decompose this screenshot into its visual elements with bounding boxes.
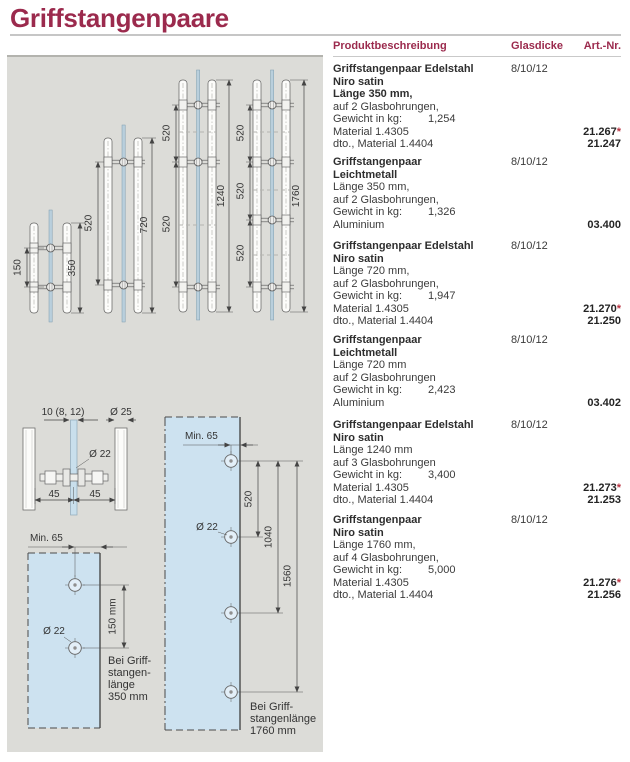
- product-detail-line: auf 3 Glasbohrungen: [333, 457, 511, 470]
- product-description: Griffstangenpaar Edelstahl Niro satin Lä…: [333, 240, 511, 328]
- article-number: 21.256: [573, 589, 621, 602]
- material-line: dto., Material 1.4404: [333, 589, 511, 602]
- caption-line: 1760 mm: [250, 725, 296, 737]
- article-number: 21.250: [573, 315, 621, 328]
- material-line: Material 1.4305: [333, 126, 511, 139]
- star-marker: *: [617, 577, 621, 589]
- product-detail-line: auf 2 Glasbohrungen: [333, 372, 511, 385]
- caption-line: Bei Griff-: [108, 655, 152, 667]
- table-row: Griffstangenpaar Niro satin Länge 1760 m…: [333, 514, 621, 602]
- material-line: dto., Material 1.4404: [333, 494, 511, 507]
- product-detail-line: Länge 1240 mm: [333, 444, 511, 457]
- glass-thickness: 8/10/12: [511, 419, 573, 507]
- material-line: Material 1.4305: [333, 482, 511, 495]
- product-detail-line: Länge 350 mm,: [333, 181, 511, 194]
- product-title-line: Griffstangenpaar Edelstahl: [333, 63, 511, 76]
- dim-label-150: 150: [13, 259, 24, 276]
- product-title-line: Niro satin: [333, 253, 511, 266]
- weight-label: Gewicht in kg:: [333, 206, 428, 219]
- min-edge-label: Min. 65: [30, 533, 63, 544]
- product-table: Griffstangenpaar Edelstahl Niro satin Lä…: [333, 0, 621, 762]
- drawing-cross-section: 10 (8, 12) Ø 25 Ø 22 45 45: [23, 407, 136, 515]
- offset-right-label: 45: [89, 489, 101, 500]
- glass-thickness: 8/10/12: [511, 334, 573, 409]
- weight-line: Gewicht in kg:1,254: [333, 113, 511, 126]
- dim-label-520: 520: [236, 124, 247, 141]
- glass-thickness: 8/10/12: [511, 240, 573, 328]
- weight-line: Gewicht in kg:1,326: [333, 206, 511, 219]
- weight-value: 1,326: [428, 206, 456, 218]
- weight-line: Gewicht in kg:2,423: [333, 384, 511, 397]
- product-description: Griffstangenpaar Leichtmetall Länge 720 …: [333, 334, 511, 409]
- product-title-line: Griffstangenpaar Edelstahl: [333, 419, 511, 432]
- product-title-line: Griffstangenpaar Edelstahl: [333, 240, 511, 253]
- weight-value: 1,947: [428, 290, 456, 302]
- table-row: Griffstangenpaar Edelstahl Niro satin Lä…: [333, 63, 621, 151]
- hole-diameter-label: Ø 22: [43, 626, 65, 637]
- article-numbers: 21.270* 21.250: [573, 240, 621, 328]
- drawing-glass-panel-350: Min. 65 150 mm Ø 22 Bei Griff- stangen- …: [28, 533, 152, 728]
- product-title-line: Griffstangenpaar: [333, 156, 511, 169]
- dim-label-520: 520: [236, 244, 247, 261]
- caption-line: stangenlänge: [250, 713, 316, 725]
- dim-label-1240: 1240: [216, 184, 227, 207]
- dim-label-720: 720: [139, 216, 150, 233]
- hole-spacing-label: 150 mm: [108, 598, 119, 634]
- article-numbers: 03.402: [573, 334, 621, 409]
- weight-label: Gewicht in kg:: [333, 290, 428, 303]
- material-line: Material 1.4305: [333, 303, 511, 316]
- weight-line: Gewicht in kg:3,400: [333, 469, 511, 482]
- glass-thickness: 8/10/12: [511, 514, 573, 602]
- article-number: 21.267*: [573, 126, 621, 139]
- dim-label-520: 520: [236, 182, 247, 199]
- product-title-line: Griffstangenpaar: [333, 514, 511, 527]
- dim-label-520: 520: [162, 215, 173, 232]
- glass-thickness: 8/10/12: [511, 63, 573, 151]
- weight-line: Gewicht in kg:1,947: [333, 290, 511, 303]
- technical-drawings: 150 350 520 720: [7, 57, 323, 752]
- article-number: 03.402: [573, 397, 621, 410]
- article-numbers: 21.276* 21.256: [573, 514, 621, 602]
- hole-diameter-label: Ø 22: [196, 522, 218, 533]
- product-title-line: Länge 350 mm,: [333, 88, 511, 101]
- product-detail-line: Länge 1760 mm,: [333, 539, 511, 552]
- weight-value: 5,000: [428, 564, 456, 576]
- dim-label-520: 520: [84, 214, 95, 231]
- dim-label-520: 520: [162, 124, 173, 141]
- star-marker: *: [617, 303, 621, 315]
- drawing-handle-720: 520 720: [84, 125, 157, 322]
- weight-value: 1,254: [428, 113, 456, 125]
- glass-thickness: 8/10/12: [511, 156, 573, 231]
- hole-diameter-label: Ø 22: [89, 449, 111, 460]
- article-number: 21.247: [573, 138, 621, 151]
- weight-line: Gewicht in kg:5,000: [333, 564, 511, 577]
- dim-label-1760: 1760: [291, 184, 302, 207]
- article-numbers: 21.273* 21.253: [573, 419, 621, 507]
- product-description: Griffstangenpaar Niro satin Länge 1760 m…: [333, 514, 511, 602]
- article-number: 21.253: [573, 494, 621, 507]
- star-marker: *: [617, 126, 621, 138]
- material-line: Aluminium: [333, 397, 511, 410]
- offset-left-label: 45: [48, 489, 60, 500]
- table-row: Griffstangenpaar Leichtmetall Länge 350 …: [333, 156, 621, 231]
- table-row: Griffstangenpaar Leichtmetall Länge 720 …: [333, 334, 621, 409]
- product-title-line: Niro satin: [333, 432, 511, 445]
- caption-line: stangen-: [108, 667, 151, 679]
- dim-label-350: 350: [67, 259, 78, 276]
- product-description: Griffstangenpaar Edelstahl Niro satin Lä…: [333, 63, 511, 151]
- product-title-line: Niro satin: [333, 527, 511, 540]
- caption-line: Bei Griff-: [250, 701, 294, 713]
- product-detail-line: auf 4 Glasbohrungen,: [333, 552, 511, 565]
- star-marker: *: [617, 482, 621, 494]
- weight-label: Gewicht in kg:: [333, 113, 428, 126]
- material-line: Aluminium: [333, 219, 511, 232]
- dim-label-520: 520: [244, 490, 255, 507]
- min-edge-label: Min. 65: [185, 431, 218, 442]
- article-number: 03.400: [573, 219, 621, 232]
- product-detail-line: auf 2 Glasbohrungen,: [333, 101, 511, 114]
- article-numbers: 03.400: [573, 156, 621, 231]
- product-title-line: Leichtmetall: [333, 347, 511, 360]
- weight-label: Gewicht in kg:: [333, 469, 428, 482]
- drawing-glass-panel-1760: Min. 65 520 1040 1560 Ø 22 Bei Griff- st…: [165, 417, 316, 737]
- dim-label-1560: 1560: [283, 564, 294, 587]
- product-title-line: Griffstangenpaar: [333, 334, 511, 347]
- product-detail-line: auf 2 Glasbohrungen,: [333, 194, 511, 207]
- bar-diameter-label: Ø 25: [110, 407, 132, 418]
- drawing-handle-350: 150 350: [13, 210, 85, 322]
- product-detail-line: auf 2 Glasbohrungen,: [333, 278, 511, 291]
- article-number: 21.276*: [573, 577, 621, 590]
- article-number: 21.270*: [573, 303, 621, 316]
- weight-value: 2,423: [428, 384, 456, 396]
- product-title-line: Niro satin: [333, 76, 511, 89]
- product-detail-line: Länge 720 mm,: [333, 265, 511, 278]
- weight-value: 3,400: [428, 469, 456, 481]
- table-row: Griffstangenpaar Edelstahl Niro satin Lä…: [333, 240, 621, 328]
- weight-label: Gewicht in kg:: [333, 384, 428, 397]
- caption-line: 350 mm: [108, 691, 148, 703]
- material-line: dto., Material 1.4404: [333, 138, 511, 151]
- table-row: Griffstangenpaar Edelstahl Niro satin Lä…: [333, 419, 621, 507]
- article-number: 21.273*: [573, 482, 621, 495]
- product-title-line: Leichtmetall: [333, 169, 511, 182]
- drawing-handle-1760: 520 520 520 1760: [236, 70, 309, 320]
- material-line: dto., Material 1.4404: [333, 315, 511, 328]
- caption-line: länge: [108, 679, 135, 691]
- product-detail-line: Länge 720 mm: [333, 359, 511, 372]
- page-title: Griffstangenpaare: [10, 3, 229, 34]
- material-line: Material 1.4305: [333, 577, 511, 590]
- article-numbers: 21.267* 21.247: [573, 63, 621, 151]
- product-description: Griffstangenpaar Edelstahl Niro satin Lä…: [333, 419, 511, 507]
- weight-label: Gewicht in kg:: [333, 564, 428, 577]
- product-description: Griffstangenpaar Leichtmetall Länge 350 …: [333, 156, 511, 231]
- technical-drawing-panel: 150 350 520 720: [7, 55, 323, 752]
- drawing-handle-1240: 520 520 1240: [162, 70, 234, 320]
- dim-label-1040: 1040: [264, 525, 275, 548]
- glass-thickness-label: 10 (8, 12): [42, 407, 85, 418]
